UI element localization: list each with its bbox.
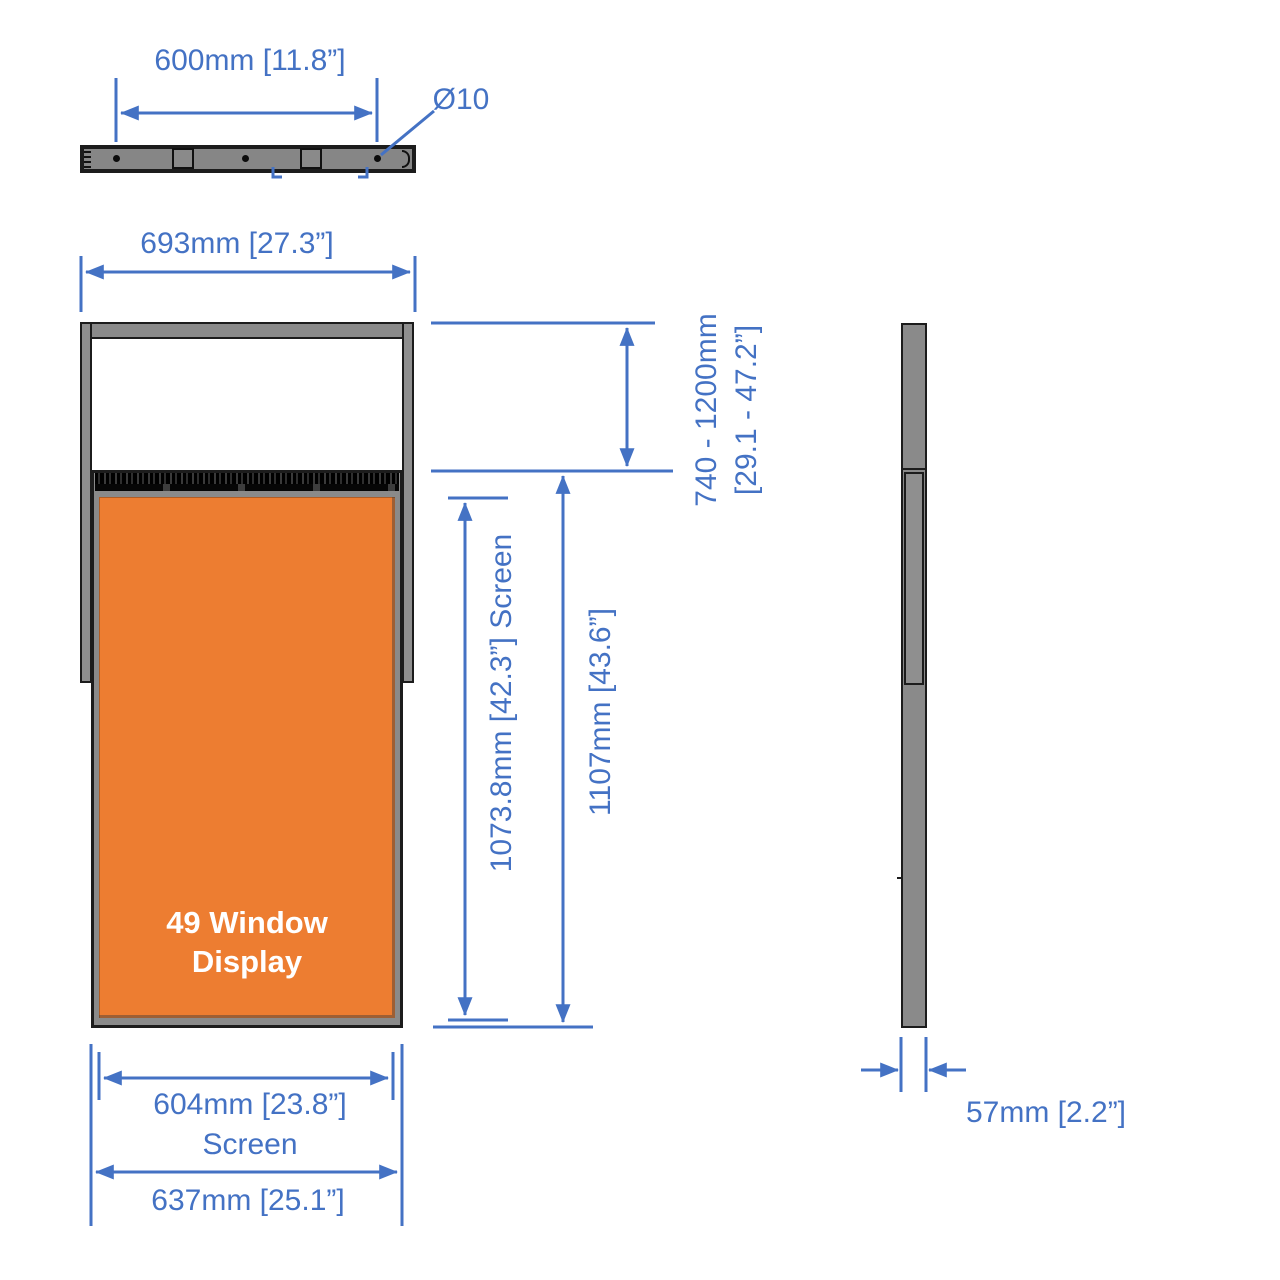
top-view-bracket-marks [273, 167, 367, 177]
window-display-technical-drawing: 49 Window Display [0, 0, 1280, 1280]
label-57mm: 57mm [2.2”] [896, 1096, 1196, 1130]
label-hole-diameter: Ø10 [411, 83, 511, 117]
label-height-range-line1: 740 - 1200mm [687, 290, 727, 530]
label-screen-caption: Screen [100, 1128, 400, 1162]
hole-diameter-leader [381, 111, 434, 155]
label-637mm: 637mm [25.1”] [98, 1184, 398, 1218]
label-693mm: 693mm [27.3”] [87, 227, 387, 261]
label-604mm: 604mm [23.8”] [100, 1088, 400, 1122]
label-height-range-line2: [29.1 - 47.2”] [727, 290, 767, 530]
dim-600mm [116, 78, 377, 142]
label-overall-height: 1107mm [43.6”] [584, 582, 618, 842]
label-screen-height: 1073.8mm [42.3”] Screen [485, 503, 519, 903]
label-600mm: 600mm [11.8”] [100, 44, 400, 78]
dim-depth [861, 1037, 966, 1092]
label-height-range: 740 - 1200mm [29.1 - 47.2”] [687, 290, 767, 530]
dim-height-range [431, 323, 673, 471]
dim-693mm [81, 256, 415, 312]
